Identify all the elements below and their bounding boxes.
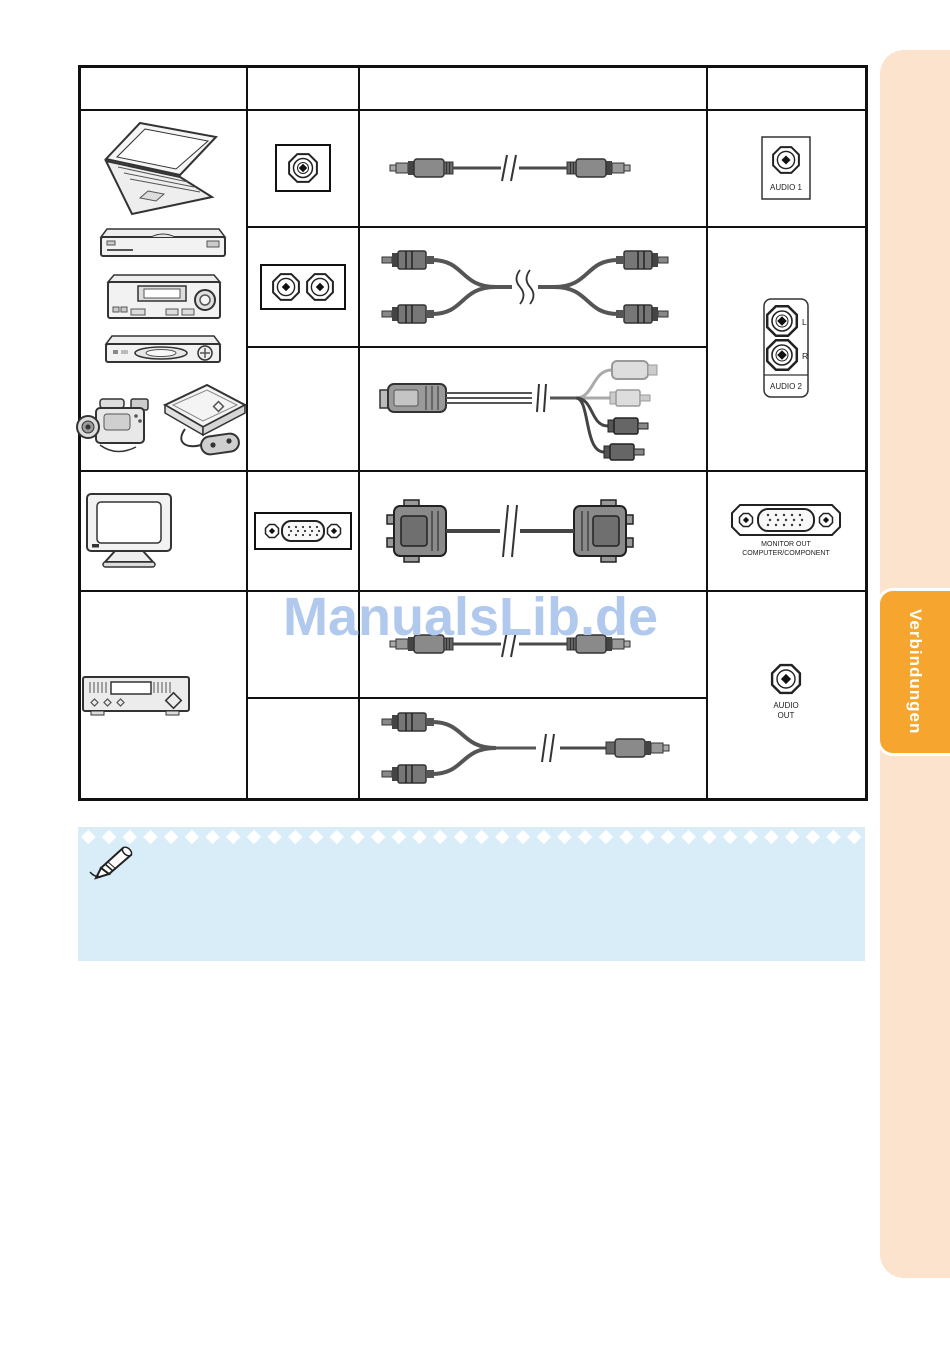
cable-cell-rca-minijack	[359, 698, 707, 800]
audio-out-port-icon: AUDIO OUT	[754, 663, 818, 727]
rca-audio-cable-icon	[360, 232, 706, 342]
port-cell-audio2: L R AUDIO 2	[707, 227, 867, 471]
stereo-minijack-cable-icon	[360, 628, 706, 660]
chapter-tab-verbindungen: Verbindungen	[877, 588, 950, 756]
amplifier-cell	[80, 591, 247, 800]
monitor-out-port-icon: MONITOR OUT COMPUTER/COMPONENT	[724, 501, 848, 561]
header-port	[707, 67, 867, 110]
monitor-cell	[80, 471, 247, 591]
rca-terminal-icon	[260, 264, 346, 310]
game-console-icon	[155, 375, 251, 459]
terminal-vga-cell	[247, 471, 359, 591]
dvd-player-icon	[99, 226, 227, 260]
table-header-row	[80, 67, 867, 110]
header-device	[80, 67, 247, 110]
port-cell-audio1: AUDIO 1	[707, 110, 867, 227]
amplifier-icon	[81, 671, 246, 719]
cable-cell-rca	[359, 227, 707, 347]
audio2-left-label: L	[802, 317, 807, 327]
audio2-right-label: R	[802, 351, 808, 361]
connection-table: AUDIO 1	[78, 65, 868, 801]
port-cell-monitor-out: MONITOR OUT COMPUTER/COMPONENT	[707, 471, 867, 591]
header-cable	[359, 67, 707, 110]
camcorder-icon	[75, 387, 153, 459]
port-cell-audio-out: AUDIO OUT	[707, 591, 867, 800]
cable-cell-vga	[359, 471, 707, 591]
cable-cell-minijack	[359, 110, 707, 227]
audio2-port-icon: L R AUDIO 2	[748, 297, 824, 401]
table-row: AUDIO OUT	[80, 591, 867, 698]
audio-out-label-line2: OUT	[778, 711, 795, 720]
monitor-icon	[81, 492, 246, 570]
manual-page: Verbindungen ManualsLib.de	[0, 0, 950, 1346]
stereo-minijack-cable-icon	[360, 152, 706, 184]
pencil-icon	[88, 841, 134, 883]
chapter-tab-label: Verbindungen	[905, 609, 925, 734]
vga-terminal-icon	[254, 512, 352, 550]
set-top-box-icon	[103, 332, 223, 366]
monitor-out-label-line2: COMPUTER/COMPONENT	[743, 550, 831, 557]
minijack-terminal-icon	[275, 144, 331, 192]
note-diamond-border	[78, 829, 865, 847]
cable-cell-minijack-2	[359, 591, 707, 698]
vga-cable-icon	[360, 495, 706, 567]
table-row: MONITOR OUT COMPUTER/COMPONENT	[80, 471, 867, 591]
devices-cell	[80, 110, 247, 471]
table-row: AUDIO 1	[80, 110, 867, 227]
terminal-empty-cell	[247, 698, 359, 800]
rca-to-minijack-cable-icon	[360, 700, 706, 796]
header-terminal	[247, 67, 359, 110]
audio1-port-icon: AUDIO 1	[758, 135, 814, 201]
laptop-icon	[104, 121, 222, 217]
vcr-icon	[104, 269, 222, 323]
audio-out-label-line1: AUDIO	[774, 701, 799, 710]
cable-cell-camcorder-av	[359, 347, 707, 471]
monitor-out-label-line1: MONITOR OUT	[761, 541, 811, 548]
audio1-port-label: AUDIO 1	[770, 183, 803, 192]
terminal-rca-cell	[247, 227, 359, 347]
note-box	[78, 827, 865, 961]
terminal-empty-cell	[247, 347, 359, 471]
terminal-minijack-cell	[247, 110, 359, 227]
terminal-empty-cell	[247, 591, 359, 698]
audio2-port-label: AUDIO 2	[770, 382, 803, 391]
camcorder-av-cable-icon	[360, 348, 706, 470]
